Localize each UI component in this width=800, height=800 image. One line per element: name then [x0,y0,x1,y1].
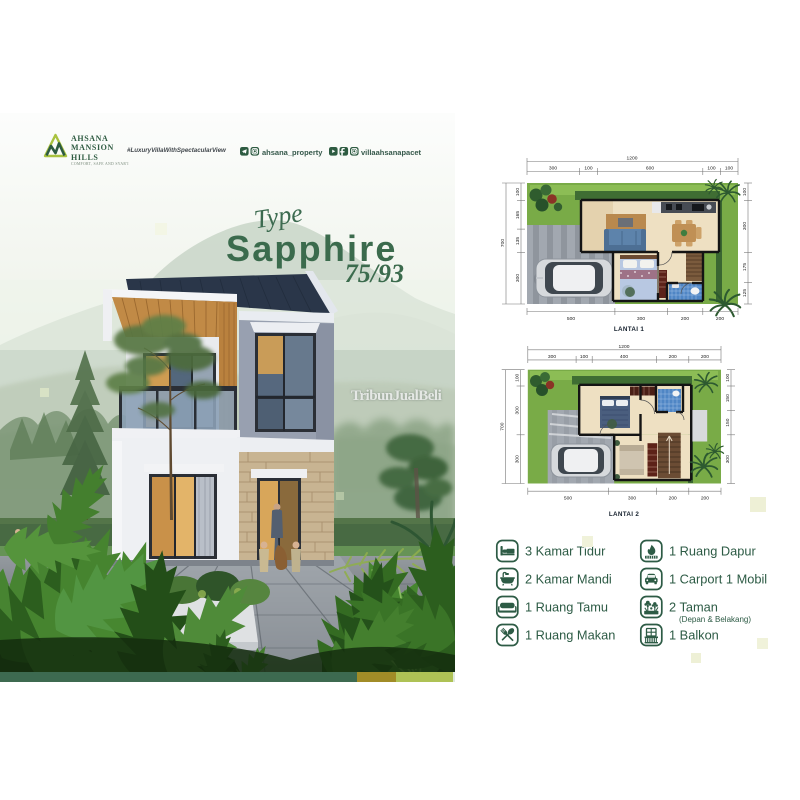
svg-text:200: 200 [701,496,709,502]
svg-text:125: 125 [742,289,748,297]
svg-text:300: 300 [725,455,731,463]
svg-text:700: 700 [500,422,506,430]
svg-text:200: 200 [669,496,677,502]
svg-text:100: 100 [515,188,521,196]
svg-text:1 Carport 1 Mobil: 1 Carport 1 Mobil [669,572,767,587]
svg-text:1200: 1200 [619,344,630,350]
svg-text:200: 200 [716,316,724,322]
svg-text:LANTAI 2: LANTAI 2 [609,511,639,518]
svg-text:500: 500 [564,496,572,502]
svg-text:1 Ruang Tamu: 1 Ruang Tamu [525,600,608,615]
svg-text:100: 100 [515,373,521,381]
svg-text:1 Ruang Makan: 1 Ruang Makan [525,628,615,643]
svg-text:2 Kamar Mandi: 2 Kamar Mandi [525,572,612,587]
svg-text:100: 100 [742,188,748,196]
svg-text:1 Ruang Dapur: 1 Ruang Dapur [669,544,757,559]
svg-text:600: 600 [646,166,654,172]
svg-text:300: 300 [742,222,748,230]
svg-text:100: 100 [707,166,715,172]
svg-text:150: 150 [725,418,731,426]
svg-text:300: 300 [515,406,521,414]
svg-text:100: 100 [580,354,588,360]
svg-text:300: 300 [637,316,645,322]
svg-text:300: 300 [549,166,557,172]
svg-text:1200: 1200 [627,156,638,162]
svg-text:LANTAI 1: LANTAI 1 [614,326,644,333]
svg-text:300: 300 [515,455,521,463]
svg-text:200: 200 [669,354,677,360]
svg-text:(Depan & Belakang): (Depan & Belakang) [679,615,751,624]
svg-text:3 Kamar Tidur: 3 Kamar Tidur [525,544,606,559]
svg-text:175: 175 [742,263,748,271]
svg-text:500: 500 [567,316,575,322]
svg-text:300: 300 [515,274,521,282]
svg-text:1 Balkon: 1 Balkon [669,628,719,643]
svg-text:100: 100 [725,166,733,172]
svg-text:2 Taman: 2 Taman [669,600,718,615]
svg-text:700: 700 [500,239,506,247]
svg-text:200: 200 [701,354,709,360]
svg-text:100: 100 [725,373,731,381]
svg-text:100: 100 [584,166,592,172]
svg-text:135: 135 [515,237,521,245]
svg-text:165: 165 [515,211,521,219]
svg-text:400: 400 [620,354,628,360]
svg-text:300: 300 [548,354,556,360]
svg-text:300: 300 [628,496,636,502]
svg-text:150: 150 [725,394,731,402]
svg-text:200: 200 [681,316,689,322]
